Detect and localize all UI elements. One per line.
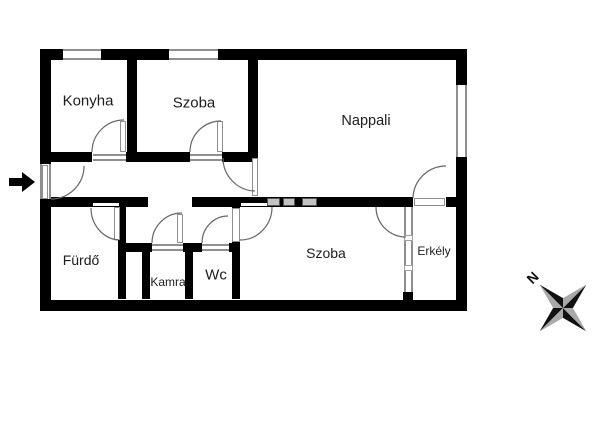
wall-kamra-west — [142, 252, 150, 299]
room-label-konyha: Konyha — [63, 93, 114, 110]
threshold-wc — [202, 244, 229, 251]
threshold-konyha — [93, 154, 126, 161]
floor-plan: N Konyha Szoba Nappali Fürdő Kamra Wc Sz… — [0, 0, 600, 424]
compass-north-label: N — [523, 268, 541, 286]
door-leaf-nappali — [252, 158, 258, 196]
compass-point — [540, 308, 568, 336]
door-arc-entrance — [51, 166, 84, 199]
compass-point — [558, 308, 586, 336]
wall-konyha-south-left — [51, 152, 92, 162]
wall-shaft-cap — [118, 243, 152, 252]
compass-point — [558, 280, 586, 308]
door-arc-nappali — [223, 158, 255, 191]
door-leaf-kamra — [177, 214, 183, 243]
compass-point — [540, 280, 568, 308]
glass-wall-base-stub — [403, 292, 413, 302]
window-nappali-icon — [456, 85, 467, 157]
glass-wall-joint — [404, 235, 413, 241]
window-szoba-icon — [169, 49, 218, 60]
glass-wall-joint — [404, 265, 413, 271]
outer-wall-top — [40, 49, 467, 60]
entrance-arrow-icon — [9, 178, 23, 186]
wall-cabinet-block — [302, 198, 317, 206]
plan-overlay: N — [0, 0, 600, 424]
compass-rose: N — [504, 249, 600, 355]
room-label-kamra: Kamra — [150, 275, 185, 289]
door-leaf-szoba-bottom — [232, 208, 240, 242]
window-konyha-icon — [63, 49, 101, 60]
compass-point — [535, 303, 563, 331]
compass-point — [563, 285, 591, 313]
room-label-nappali: Nappali — [341, 113, 390, 129]
threshold-szoba-bottom — [241, 203, 267, 206]
door-arc-erkely-szoba — [376, 207, 406, 237]
threshold-kamra — [152, 244, 183, 251]
door-leaf-szoba-top — [217, 121, 223, 152]
wall-kamra-wc — [185, 252, 193, 299]
wall-cabinet-block — [283, 198, 295, 206]
door-arc-erkely-nappali — [413, 166, 446, 198]
compass-point — [535, 285, 563, 313]
threshold-furdo — [93, 203, 119, 206]
wall-corridor-south-end — [446, 197, 456, 207]
room-label-wc: Wc — [205, 267, 227, 284]
door-leaf-konyha — [120, 121, 126, 152]
glass-wall-erkely — [404, 207, 413, 295]
door-leaf-furdo — [114, 207, 120, 240]
room-label-szoba-top: Szoba — [173, 95, 216, 112]
door-leaf-erkely-nappali — [414, 198, 445, 206]
wall-cabinet-block — [267, 198, 280, 206]
room-label-furdo: Fürdő — [63, 252, 100, 268]
room-label-erkely: Erkély — [417, 244, 450, 258]
compass-point — [563, 303, 591, 331]
door-arc-szoba-bottom — [240, 207, 272, 240]
wall-konyha-szoba-south — [126, 152, 190, 162]
wall-szoba-nappali — [248, 60, 258, 158]
wall-kamra-wc-top — [183, 243, 202, 252]
door-leaf-entrance — [42, 165, 48, 199]
entrance-arrow-icon — [22, 172, 35, 192]
wall-konyha-szoba — [127, 60, 137, 162]
threshold-szoba — [190, 154, 222, 161]
door-arc-wc — [202, 216, 228, 243]
room-label-szoba-bottom: Szoba — [306, 245, 346, 261]
